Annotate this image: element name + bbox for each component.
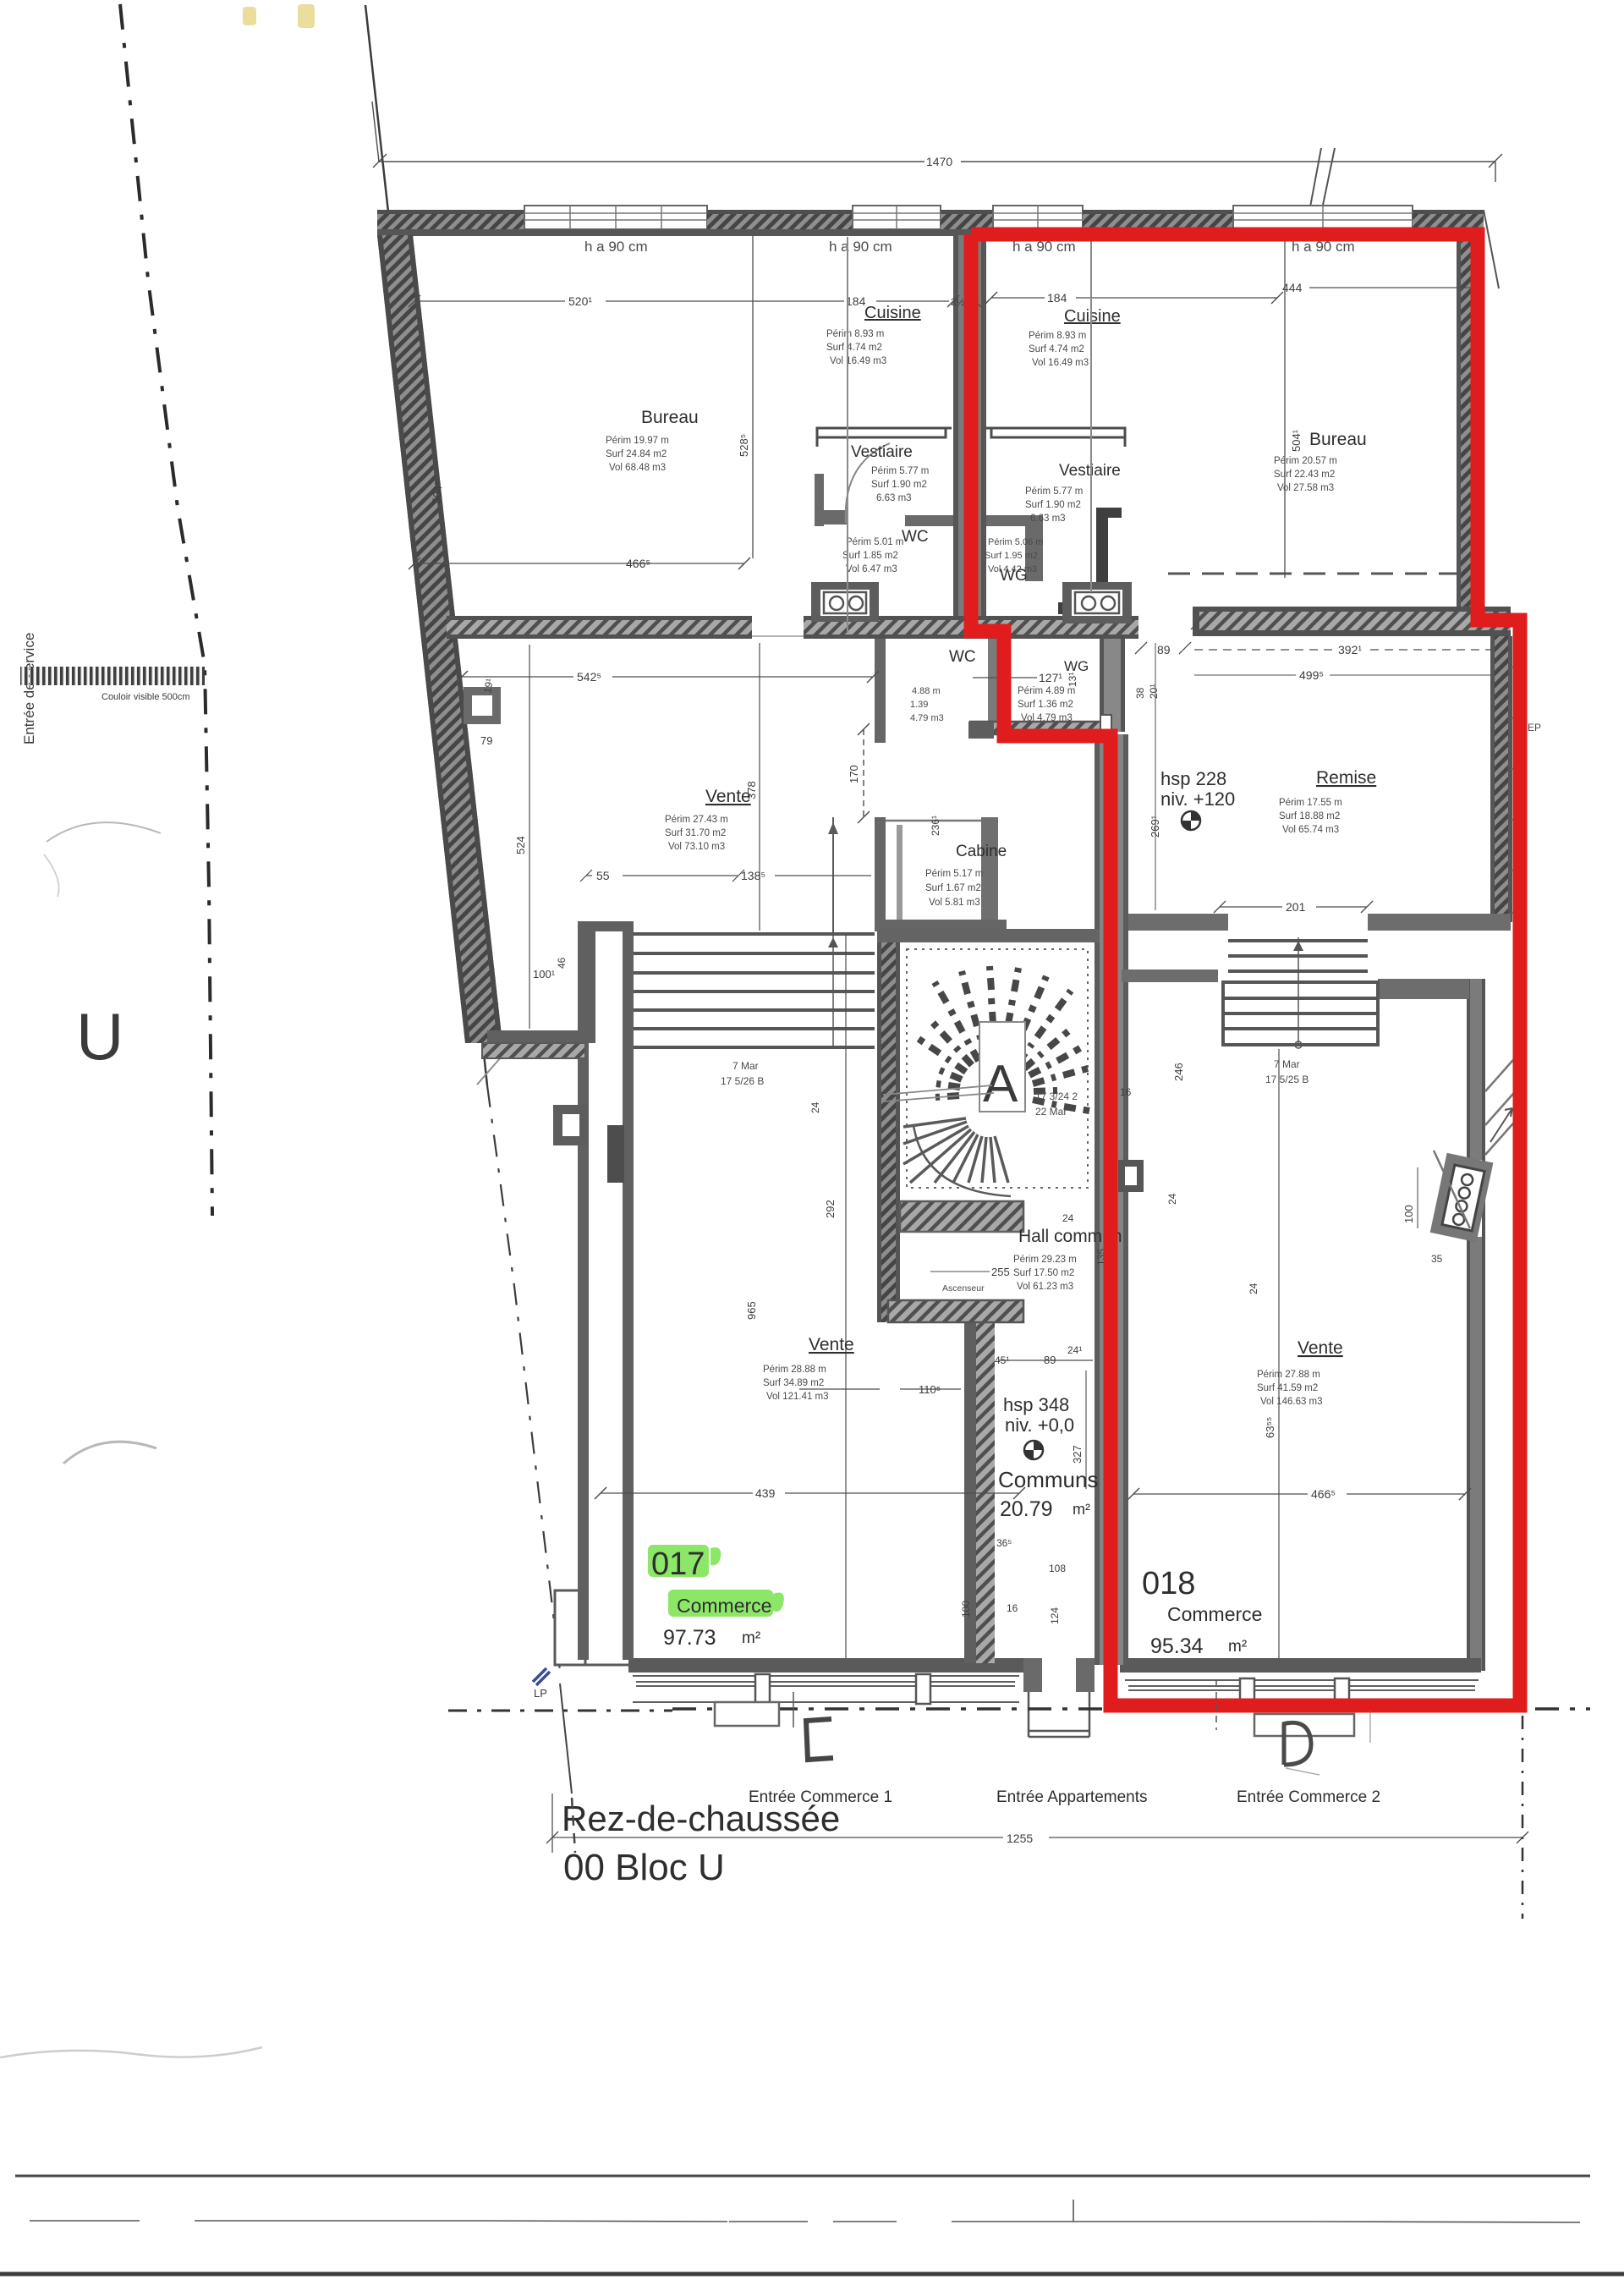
svg-text:Vol 146.63 m3: Vol 146.63 m3 (1260, 1397, 1323, 1407)
svg-text:46: 46 (556, 957, 568, 969)
svg-text:24¹: 24¹ (1067, 1344, 1082, 1356)
svg-text:20¹: 20¹ (1148, 684, 1160, 699)
svg-text:Périm 5.06 m: Périm 5.06 m (988, 537, 1043, 547)
svg-text:Vol 16.49 m3: Vol 16.49 m3 (830, 356, 886, 366)
svg-text:Vol 121.41 m3: Vol 121.41 m3 (766, 1392, 829, 1402)
svg-text:Couloir visible 500cm: Couloir visible 500cm (101, 692, 190, 702)
svg-text:24: 24 (1248, 1283, 1259, 1294)
svg-text:Périm 19.97 m: Périm 19.97 m (606, 436, 669, 446)
svg-text:niv. +120: niv. +120 (1160, 788, 1235, 810)
svg-text:55: 55 (596, 869, 610, 882)
svg-text:89: 89 (1157, 643, 1171, 656)
svg-text:79: 79 (480, 734, 492, 747)
svg-text:Périm 17.55 m: Périm 17.55 m (1279, 798, 1342, 808)
svg-text:Vol 4.79 m3: Vol 4.79 m3 (1021, 713, 1073, 723)
svg-text:Surf 41.59 m2: Surf 41.59 m2 (1257, 1383, 1318, 1393)
svg-text:m²: m² (1073, 1501, 1090, 1518)
svg-text:236¹: 236¹ (930, 816, 941, 836)
svg-text:4.79 m3: 4.79 m3 (910, 713, 944, 723)
svg-text:Périm 27.43 m: Périm 27.43 m (665, 815, 728, 825)
svg-text:45¹: 45¹ (995, 1354, 1009, 1366)
svg-text:Vol 65.74 m3: Vol 65.74 m3 (1282, 825, 1339, 835)
svg-text:Vol 16.49 m3: Vol 16.49 m3 (1032, 358, 1089, 368)
svg-text:7 Mar: 7 Mar (1274, 1058, 1300, 1070)
svg-text:Vol 73.10 m3: Vol 73.10 m3 (668, 842, 725, 852)
svg-text:Vestiaire: Vestiaire (851, 443, 913, 461)
svg-text:Surf 1.90 m2: Surf 1.90 m2 (1025, 500, 1081, 510)
svg-text:504¹: 504¹ (1290, 429, 1303, 452)
svg-text:Vente: Vente (705, 787, 751, 806)
svg-text:U: U (76, 999, 123, 1074)
svg-text:Surf 18.88 m2: Surf 18.88 m2 (1279, 811, 1340, 821)
svg-text:A: A (983, 1055, 1018, 1113)
svg-text:Surf 1.85 m2: Surf 1.85 m2 (842, 551, 898, 561)
svg-text:hsp 348: hsp 348 (1003, 1394, 1069, 1415)
svg-text:965: 965 (745, 1301, 758, 1320)
svg-text:22 Mar: 22 Mar (1035, 1106, 1067, 1118)
svg-text:439: 439 (755, 1486, 776, 1500)
svg-text:110⁵: 110⁵ (919, 1383, 941, 1396)
svg-text:24: 24 (809, 1101, 821, 1113)
svg-text:36⁵: 36⁵ (996, 1537, 1012, 1549)
svg-text:24: 24 (1062, 1212, 1074, 1224)
svg-text:h a 90 cm: h a 90 cm (829, 239, 892, 255)
svg-text:Entrée Commerce 2: Entrée Commerce 2 (1237, 1788, 1380, 1806)
svg-text:542⁵: 542⁵ (577, 670, 601, 684)
svg-text:Cuisine: Cuisine (1064, 307, 1121, 326)
svg-text:Vol 6.47 m3: Vol 6.47 m3 (846, 564, 897, 574)
svg-text:Surf 22.43 m2: Surf 22.43 m2 (1274, 470, 1335, 480)
svg-text:Vol 61.23 m3: Vol 61.23 m3 (1017, 1282, 1073, 1292)
svg-text:Périm 29.23 m: Périm 29.23 m (1013, 1255, 1077, 1265)
svg-text:m²: m² (742, 1629, 760, 1647)
svg-text:6.63 m3: 6.63 m3 (876, 493, 912, 503)
svg-text:LP: LP (534, 1687, 547, 1700)
svg-text:Surf 34.89 m2: Surf 34.89 m2 (763, 1378, 824, 1388)
svg-text:Commerce: Commerce (677, 1595, 771, 1617)
svg-text:170: 170 (848, 765, 860, 783)
svg-text:100: 100 (1402, 1205, 1415, 1223)
svg-text:392¹: 392¹ (1338, 643, 1362, 656)
svg-text:466⁵: 466⁵ (1311, 1487, 1336, 1501)
svg-text:Périm 28.88 m: Périm 28.88 m (763, 1365, 826, 1375)
svg-text:Périm 5.77 m: Périm 5.77 m (871, 466, 929, 476)
svg-text:19¹: 19¹ (481, 678, 496, 695)
svg-text:Rez-de-chaussée: Rez-de-chaussée (562, 1799, 840, 1838)
svg-text:97.73: 97.73 (663, 1626, 716, 1650)
svg-text:Surf 4.74 m2: Surf 4.74 m2 (826, 343, 882, 353)
svg-text:Périm 8.93 m: Périm 8.93 m (1029, 331, 1086, 341)
svg-text:Surf 17.50 m2: Surf 17.50 m2 (1013, 1268, 1074, 1278)
svg-text:Surf 31.70 m2: Surf 31.70 m2 (665, 828, 726, 838)
svg-text:hsp 228: hsp 228 (1160, 768, 1226, 789)
svg-text:WG: WG (1064, 658, 1089, 674)
svg-text:246: 246 (1172, 1063, 1185, 1081)
svg-text:124: 124 (1049, 1607, 1061, 1624)
svg-text:Ascenseur: Ascenseur (942, 1283, 985, 1294)
svg-text:Communs: Communs (998, 1467, 1098, 1492)
svg-text:255: 255 (991, 1266, 1010, 1278)
svg-text:Surf 24.84 m2: Surf 24.84 m2 (606, 449, 667, 459)
svg-text:7 Mar: 7 Mar (732, 1060, 759, 1072)
svg-text:Surf 1.90 m2: Surf 1.90 m2 (871, 480, 927, 490)
svg-text:95.34: 95.34 (1150, 1634, 1204, 1658)
svg-text:Entrée de service: Entrée de service (21, 633, 37, 744)
svg-text:108: 108 (1049, 1563, 1066, 1574)
svg-text:89: 89 (1044, 1354, 1056, 1366)
svg-text:13¹: 13¹ (1067, 673, 1078, 687)
svg-text:Remise: Remise (1316, 768, 1376, 788)
svg-text:Bureau: Bureau (1309, 430, 1367, 449)
svg-text:WC: WC (949, 648, 976, 666)
svg-text:528⁵: 528⁵ (738, 434, 750, 457)
svg-text:Entrée Appartements: Entrée Appartements (996, 1788, 1148, 1806)
svg-text:Vol 4.42 m3: Vol 4.42 m3 (988, 564, 1037, 574)
svg-text:16: 16 (1120, 1086, 1132, 1098)
svg-text:504⁵: 504⁵ (430, 481, 445, 505)
svg-text:m²: m² (1228, 1638, 1247, 1656)
svg-text:4.88 m: 4.88 m (912, 686, 941, 696)
svg-text:Périm 5.01 m: Périm 5.01 m (846, 537, 903, 547)
svg-text:184: 184 (1047, 291, 1067, 305)
svg-text:h a 90 cm: h a 90 cm (584, 239, 648, 255)
svg-text:17 5/26 B: 17 5/26 B (721, 1075, 764, 1087)
svg-text:Périm 5.17 m: Périm 5.17 m (925, 869, 983, 879)
svg-text:184: 184 (846, 294, 866, 308)
svg-text:201: 201 (1286, 900, 1306, 914)
svg-text:Périm 20.57 m: Périm 20.57 m (1274, 456, 1337, 466)
svg-text:17 3/24 2: 17 3/24 2 (1035, 1090, 1078, 1102)
svg-text:WC: WC (902, 528, 929, 546)
svg-text:327: 327 (1071, 1445, 1084, 1464)
svg-text:Périm 4.89 m: Périm 4.89 m (1018, 686, 1075, 696)
svg-text:Périm 8.93 m: Périm 8.93 m (826, 329, 884, 339)
svg-text:1255: 1255 (1007, 1832, 1033, 1845)
svg-text:35: 35 (1431, 1253, 1443, 1265)
svg-text:38: 38 (1134, 687, 1146, 699)
svg-text:100: 100 (960, 1601, 972, 1618)
svg-text:Périm 5.77 m: Périm 5.77 m (1025, 486, 1083, 497)
svg-text:Surf 4.74 m2: Surf 4.74 m2 (1029, 344, 1084, 354)
svg-text:520¹: 520¹ (568, 294, 592, 308)
svg-text:017: 017 (651, 1546, 705, 1582)
svg-text:6.63 m3: 6.63 m3 (1030, 514, 1066, 524)
svg-text:Surf 1.95 m2: Surf 1.95 m2 (985, 551, 1038, 561)
svg-text:Vol 5.81 m3: Vol 5.81 m3 (929, 898, 980, 908)
svg-text:00 Bloc U: 00 Bloc U (563, 1847, 725, 1888)
svg-text:Cabine: Cabine (956, 843, 1007, 860)
svg-text:Surf 1.36 m2: Surf 1.36 m2 (1018, 700, 1073, 710)
svg-text:Vol 27.58 m3: Vol 27.58 m3 (1277, 483, 1334, 493)
svg-text:292: 292 (824, 1200, 837, 1218)
svg-text:138⁵: 138⁵ (741, 869, 765, 882)
svg-text:466⁵: 466⁵ (626, 557, 650, 570)
svg-text:17 5/25 B: 17 5/25 B (1265, 1074, 1309, 1085)
svg-text:Périm 27.88 m: Périm 27.88 m (1257, 1370, 1320, 1380)
svg-text:Vente: Vente (1298, 1338, 1343, 1358)
svg-text:16: 16 (1007, 1602, 1018, 1614)
svg-text:20.79: 20.79 (1000, 1497, 1053, 1521)
svg-text:524: 524 (514, 836, 527, 854)
svg-text:1.39: 1.39 (910, 700, 928, 710)
svg-text:Vente: Vente (809, 1335, 854, 1354)
svg-text:Vestiaire: Vestiaire (1059, 462, 1121, 480)
svg-text:63⁵⁵: 63⁵⁵ (1264, 1417, 1276, 1438)
svg-text:24: 24 (1166, 1193, 1178, 1205)
svg-text:100¹: 100¹ (533, 968, 556, 980)
svg-text:018: 018 (1142, 1566, 1195, 1601)
svg-text:Surf 1.67 m2: Surf 1.67 m2 (925, 883, 981, 893)
svg-text:499⁵: 499⁵ (1299, 668, 1324, 682)
svg-text:Bureau: Bureau (641, 408, 699, 427)
svg-text:127¹: 127¹ (1039, 671, 1062, 684)
svg-text:Commerce: Commerce (1167, 1603, 1262, 1625)
svg-text:1470: 1470 (926, 155, 952, 168)
svg-text:EP: EP (1528, 722, 1541, 733)
svg-text:Vol 68.48 m3: Vol 68.48 m3 (609, 463, 666, 473)
svg-text:niv. +0,0: niv. +0,0 (1005, 1414, 1074, 1436)
svg-text:Cuisine: Cuisine (864, 304, 921, 322)
